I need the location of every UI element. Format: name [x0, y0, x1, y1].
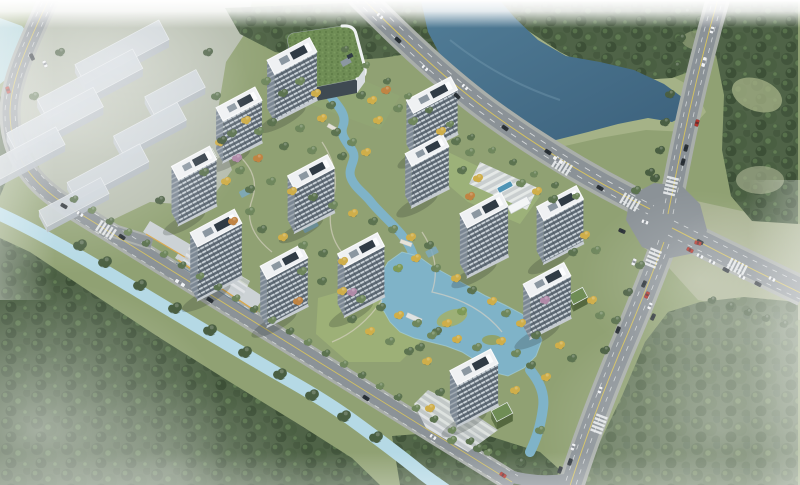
sky-band — [0, 0, 800, 28]
aerial-site-rendering — [0, 0, 800, 485]
fade-bottom-edge — [0, 452, 800, 485]
rendering-canvas — [0, 0, 800, 485]
fade-right-edge — [748, 180, 800, 485]
fade-left-edge — [0, 0, 55, 300]
